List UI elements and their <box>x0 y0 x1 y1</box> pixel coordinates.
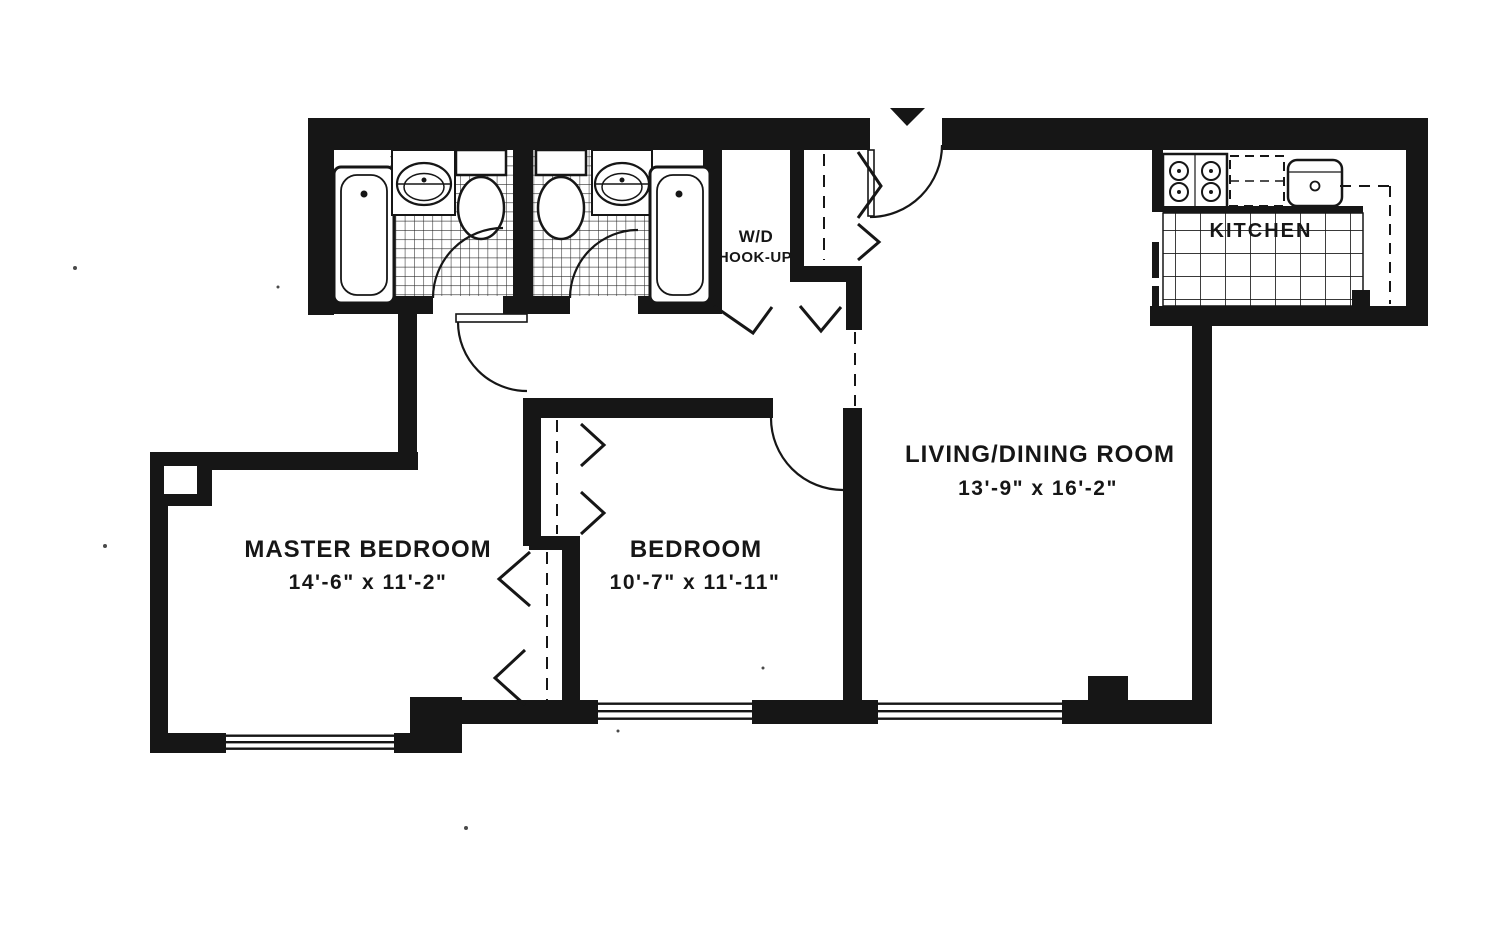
speck <box>73 266 77 270</box>
bifold-door-icon <box>581 424 604 466</box>
living-dining-room-label: LIVING/DINING ROOM <box>905 443 1175 467</box>
toilet-icon <box>456 150 506 239</box>
bathroom1-hall-door <box>456 314 527 391</box>
bedroom-label: BEDROOM <box>630 538 762 562</box>
toilet-tank <box>456 150 506 175</box>
window-line <box>598 703 752 705</box>
bifold-door-icon <box>714 306 772 333</box>
bedroom-door <box>771 418 843 490</box>
entry-arrow-icon <box>890 108 925 126</box>
bedroom-window <box>598 700 752 724</box>
wall-segment <box>846 282 862 330</box>
range-icon <box>1163 154 1227 208</box>
window-line <box>226 741 394 743</box>
wall-stub <box>1152 242 1159 278</box>
sink-faucet <box>620 178 625 183</box>
wall-stub <box>1152 286 1159 306</box>
toilet-icon <box>536 150 586 239</box>
wall-segment <box>523 398 541 546</box>
wall-segment <box>562 546 580 704</box>
wall-segment <box>1192 314 1212 724</box>
window-line <box>226 735 394 737</box>
wall-segment <box>1406 118 1428 326</box>
burner-dot <box>1177 190 1181 194</box>
door-swing-arc <box>458 322 527 391</box>
wall-segment <box>798 266 862 282</box>
bathtub-drain <box>361 191 368 198</box>
dishwasher-icon <box>1230 156 1284 206</box>
living-dining-room-dimensions: 13'-9" x 16'-2" <box>958 478 1118 499</box>
window-line <box>878 718 1062 720</box>
door-swing-arc <box>771 418 843 490</box>
window-line <box>598 718 752 720</box>
window-line <box>878 703 1062 705</box>
toilet-bowl <box>538 177 584 239</box>
bifold-door-icon <box>499 552 530 606</box>
laundry-hookup-label-line1: W/D <box>739 228 774 245</box>
wall-segment <box>503 296 570 314</box>
master-bedroom-dimensions: 14'-6" x 11'-2" <box>289 572 448 593</box>
wall-segment <box>843 408 862 710</box>
bathtub-drain <box>676 191 683 198</box>
burner-dot <box>1177 169 1181 173</box>
floor-plan: MASTER BEDROOM 14'-6" x 11'-2" BEDROOM 1… <box>0 0 1500 931</box>
bifold-door-icon <box>858 224 879 260</box>
wall-segment <box>513 150 533 296</box>
door-leaf <box>868 150 874 216</box>
wall-segment <box>1152 150 1163 212</box>
bedroom-dimensions: 10'-7" x 11'-11" <box>610 572 781 593</box>
window-line <box>598 710 752 712</box>
living-room-window <box>878 700 1062 724</box>
toilet-bowl <box>458 177 504 239</box>
master-bedroom-window <box>226 733 394 753</box>
wall-segment <box>150 452 168 753</box>
floor-plan-drawing <box>0 0 1500 931</box>
door-leaf <box>456 314 527 322</box>
speck <box>464 826 468 830</box>
wall-corner-notch <box>164 466 197 494</box>
sink-faucet <box>422 178 427 183</box>
burner-dot <box>1209 169 1213 173</box>
bathtub-icon <box>334 167 394 303</box>
toilet-tank <box>536 150 586 175</box>
wall-segment <box>398 303 417 455</box>
sink-icon <box>592 150 652 215</box>
speck <box>103 544 107 548</box>
wall-segment <box>523 398 773 418</box>
kitchen-sink-icon <box>1288 160 1342 206</box>
sink-icon <box>392 150 455 215</box>
window-line <box>226 748 394 750</box>
door-swing-arc <box>870 145 942 217</box>
kitchen-sink-basin <box>1288 160 1342 206</box>
window-line <box>878 710 1062 712</box>
burner-dot <box>1209 190 1213 194</box>
wall-segment <box>1150 306 1428 326</box>
bifold-door-icon <box>495 650 525 705</box>
bifold-door-icon <box>581 492 604 534</box>
wall-segment <box>308 118 334 315</box>
wall-segment <box>444 700 1210 724</box>
bifold-door-icon <box>800 306 841 331</box>
wall-segment <box>942 118 1428 150</box>
windows <box>226 700 1062 753</box>
wall-segment <box>308 118 870 150</box>
kitchen-label: KITCHEN <box>1210 221 1313 241</box>
speck <box>617 730 620 733</box>
master-bedroom-label: MASTER BEDROOM <box>244 538 491 562</box>
laundry-hookup-label-line2: HOOK-UP <box>718 250 792 265</box>
speck <box>277 286 280 289</box>
counter-edge <box>1163 206 1363 213</box>
wall-pillar <box>1088 676 1128 702</box>
speck <box>762 667 765 670</box>
bathtub-icon <box>650 167 710 303</box>
counter-end-block <box>1352 290 1370 306</box>
